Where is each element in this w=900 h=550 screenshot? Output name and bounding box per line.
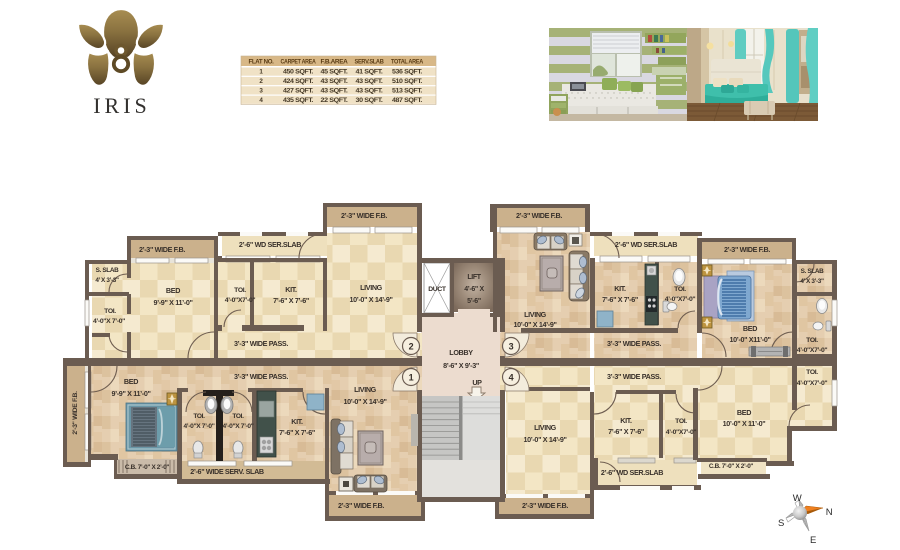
svg-text:43 SQFT.: 43 SQFT. <box>321 87 349 94</box>
svg-text:10’-0" X 14’-9": 10’-0" X 14’-9" <box>349 295 392 304</box>
svg-text:22 SQFT.: 22 SQFT. <box>321 97 349 104</box>
svg-text:S: S <box>778 518 784 529</box>
svg-text:41 SQFT.: 41 SQFT. <box>356 69 384 76</box>
svg-text:2’-6" WIDE SERV. SLAB: 2’-6" WIDE SERV. SLAB <box>190 467 264 476</box>
svg-text:435 SQFT.: 435 SQFT. <box>283 97 314 104</box>
svg-text:43 SQFT.: 43 SQFT. <box>356 78 384 85</box>
svg-text:4’-0"X7’-0": 4’-0"X7’-0" <box>797 380 828 387</box>
svg-text:S. SLAB: S. SLAB <box>96 267 119 274</box>
svg-text:4: 4 <box>509 373 514 383</box>
svg-text:450 SQFT.: 450 SQFT. <box>283 69 314 76</box>
svg-text:DUCT: DUCT <box>428 286 447 293</box>
svg-text:BED: BED <box>743 324 757 333</box>
svg-text:LIVING: LIVING <box>534 423 557 432</box>
svg-text:BED: BED <box>737 408 751 417</box>
svg-text:TOI.: TOI. <box>806 337 818 344</box>
svg-text:KIT.: KIT. <box>620 416 632 425</box>
svg-text:4’-0"X7’-0": 4’-0"X7’-0" <box>665 296 696 303</box>
svg-text:TOI.: TOI. <box>675 418 687 425</box>
svg-text:BED: BED <box>124 377 138 386</box>
svg-text:2’-3" WIDE F.B.: 2’-3" WIDE F.B. <box>139 245 185 254</box>
svg-text:LIVING: LIVING <box>524 310 547 319</box>
svg-text:43 SQFT.: 43 SQFT. <box>321 78 349 85</box>
svg-text:4’-0"X7’-0": 4’-0"X7’-0" <box>666 429 697 436</box>
svg-text:10’-0" X11’-0": 10’-0" X11’-0" <box>729 335 770 344</box>
svg-text:KIT.: KIT. <box>614 284 626 293</box>
svg-text:2’-3" WIDE F.B.: 2’-3" WIDE F.B. <box>522 501 568 510</box>
svg-text:1: 1 <box>409 373 414 383</box>
svg-text:2’-3" WIDE F.B.: 2’-3" WIDE F.B. <box>341 211 387 220</box>
svg-text:2’-3" WIDE F.B.: 2’-3" WIDE F.B. <box>72 391 79 435</box>
svg-text:3’-3" WIDE PASS.: 3’-3" WIDE PASS. <box>234 372 288 381</box>
svg-text:8’-6" X 9’-3": 8’-6" X 9’-3" <box>443 361 479 370</box>
svg-text:KIT.: KIT. <box>285 285 297 294</box>
svg-text:10’-0" X 14’-9": 10’-0" X 14’-9" <box>523 435 566 444</box>
svg-text:4’-6" X: 4’-6" X <box>464 286 484 293</box>
svg-text:4’-0"X 7’-0": 4’-0"X 7’-0" <box>93 318 125 325</box>
svg-text:2’-6" WD SER.SLAB: 2’-6" WD SER.SLAB <box>239 240 301 249</box>
svg-text:F.B.AREA: F.B.AREA <box>321 59 349 66</box>
svg-text:BED: BED <box>166 286 180 295</box>
svg-text:LIVING: LIVING <box>354 385 377 394</box>
svg-text:2’-6" WD SER.SLAB: 2’-6" WD SER.SLAB <box>601 468 663 477</box>
svg-text:427 SQFT.: 427 SQFT. <box>283 87 314 94</box>
svg-text:TOI.: TOI. <box>232 413 244 420</box>
svg-text:2’-3" WIDE F.B.: 2’-3" WIDE F.B. <box>516 211 562 220</box>
svg-text:UP: UP <box>472 378 482 387</box>
svg-text:CARPET AREA: CARPET AREA <box>281 59 317 66</box>
svg-text:TOI.: TOI. <box>234 287 246 294</box>
svg-text:C.B. 7’-0" X 2’-0": C.B. 7’-0" X 2’-0" <box>709 463 753 470</box>
svg-text:7’-6" X 7’-6": 7’-6" X 7’-6" <box>602 295 638 304</box>
svg-text:424 SQFT.: 424 SQFT. <box>283 78 314 85</box>
svg-text:9’-9" X 11’-0": 9’-9" X 11’-0" <box>153 298 192 307</box>
svg-text:C.B. 7’-0" X 2’-0": C.B. 7’-0" X 2’-0" <box>125 464 169 471</box>
svg-text:2’-3" WIDE F.B.: 2’-3" WIDE F.B. <box>724 245 770 254</box>
svg-text:3: 3 <box>509 342 514 352</box>
svg-text:IRIS: IRIS <box>93 93 151 118</box>
svg-text:TOI.: TOI. <box>806 369 818 376</box>
svg-text:3’-3" WIDE PASS.: 3’-3" WIDE PASS. <box>607 372 661 381</box>
svg-text:2: 2 <box>409 342 414 352</box>
svg-text:30 SQFT.: 30 SQFT. <box>356 97 384 104</box>
svg-text:TOTAL AREA: TOTAL AREA <box>391 59 424 66</box>
svg-text:4’-0"X7’-0": 4’-0"X7’-0" <box>225 297 256 304</box>
svg-text:LIFT: LIFT <box>467 274 481 281</box>
svg-text:487 SQFT.: 487 SQFT. <box>392 97 423 104</box>
svg-text:E: E <box>810 535 816 546</box>
svg-text:4’-0"X 7’-0": 4’-0"X 7’-0" <box>222 423 253 430</box>
svg-text:7’-6" X 7’-6": 7’-6" X 7’-6" <box>279 428 315 437</box>
svg-text:4’ X 3’-3": 4’ X 3’-3" <box>95 277 119 284</box>
svg-text:513 SQFT.: 513 SQFT. <box>392 87 423 94</box>
svg-text:3’-3" WIDE PASS.: 3’-3" WIDE PASS. <box>607 339 661 348</box>
svg-text:W: W <box>793 493 802 504</box>
svg-text:4’ X 3’-3": 4’ X 3’-3" <box>800 278 824 285</box>
svg-text:TOI.: TOI. <box>104 308 116 315</box>
svg-text:3’-3" WIDE PASS.: 3’-3" WIDE PASS. <box>234 339 288 348</box>
svg-text:SERV.SLAB: SERV.SLAB <box>355 59 385 66</box>
svg-text:LIVING: LIVING <box>360 283 383 292</box>
svg-text:9’-9" X 11’-0": 9’-9" X 11’-0" <box>111 389 150 398</box>
svg-text:7’-6" X 7’-6": 7’-6" X 7’-6" <box>608 427 644 436</box>
svg-text:510 SQFT.: 510 SQFT. <box>392 78 423 85</box>
svg-text:7’-6" X 7’-6": 7’-6" X 7’-6" <box>273 296 309 305</box>
svg-text:2’-6" WD SER.SLAB: 2’-6" WD SER.SLAB <box>615 240 677 249</box>
svg-text:43 SQFT.: 43 SQFT. <box>356 87 384 94</box>
svg-text:10’-0" X 14’-9": 10’-0" X 14’-9" <box>343 397 386 406</box>
svg-text:10’-0" X 11’-0": 10’-0" X 11’-0" <box>723 419 766 428</box>
svg-text:2’-3" WIDE F.B.: 2’-3" WIDE F.B. <box>338 501 384 510</box>
svg-text:10’-0" X 14’-9": 10’-0" X 14’-9" <box>513 320 556 329</box>
svg-text:4’-0"X7’-0": 4’-0"X7’-0" <box>797 347 828 354</box>
svg-text:LOBBY: LOBBY <box>449 348 473 357</box>
svg-text:5’-6": 5’-6" <box>467 298 481 305</box>
svg-text:S. SLAB: S. SLAB <box>801 268 824 275</box>
svg-text:TOI.: TOI. <box>193 413 205 420</box>
svg-text:TOI.: TOI. <box>674 286 686 293</box>
svg-text:KIT.: KIT. <box>291 417 303 426</box>
svg-text:N: N <box>826 507 833 518</box>
svg-text:4’-0"X 7’-0": 4’-0"X 7’-0" <box>183 423 214 430</box>
svg-text:45 SQFT.: 45 SQFT. <box>321 69 349 76</box>
svg-text:FLAT NO.: FLAT NO. <box>249 59 275 66</box>
svg-text:536 SQFT.: 536 SQFT. <box>392 69 423 76</box>
